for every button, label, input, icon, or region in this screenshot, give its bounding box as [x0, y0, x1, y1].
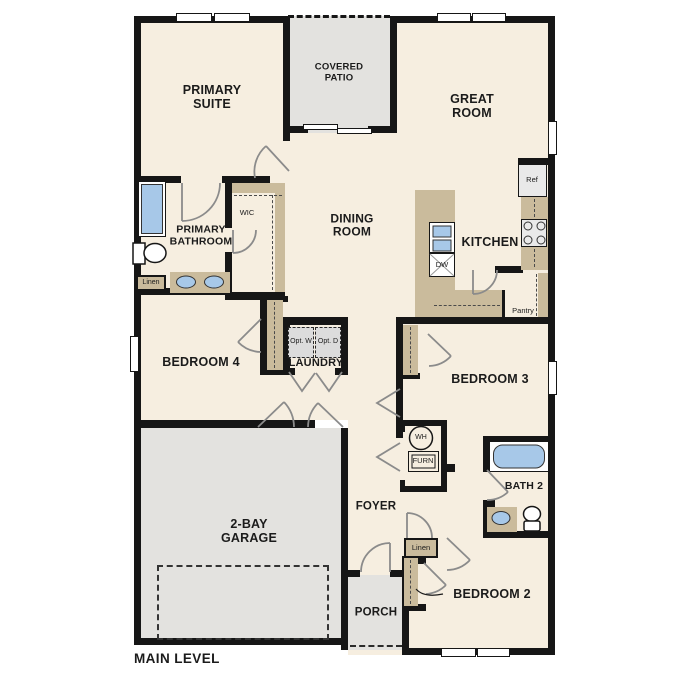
room-label-great-room: GREAT ROOM: [442, 92, 502, 120]
plan-title: MAIN LEVEL: [134, 651, 274, 666]
room-label-foyer: FOYER: [346, 501, 406, 514]
fixture-label-opt-dryer: Opt. D: [316, 338, 340, 346]
room-label-covered-patio: COVERED PATIO: [307, 62, 371, 83]
room-label-kitchen: KITCHEN: [450, 235, 530, 249]
room-label-wic: WIC: [227, 209, 267, 217]
fixture-label-opt-washer: Opt. W: [289, 338, 313, 346]
fixture-label-furnace: FURN: [406, 457, 440, 465]
room-label-primary-suite: PRIMARY SUITE: [171, 83, 253, 111]
room-label-dining-room: DINING ROOM: [322, 213, 382, 240]
room-label-primary-bathroom: PRIMARY BATHROOM: [161, 224, 241, 248]
room-label-bedroom3: BEDROOM 3: [435, 372, 545, 386]
floor-plan: PRIMARY SUITE COVERED PATIO GREAT ROOM D…: [0, 0, 687, 687]
room-label-laundry: LAUNDRY: [276, 357, 356, 369]
labels-layer: PRIMARY SUITE COVERED PATIO GREAT ROOM D…: [0, 0, 687, 687]
fixture-label-dw: DW: [427, 261, 457, 269]
room-label-garage: 2-BAY GARAGE: [208, 517, 290, 545]
room-label-pantry: Pantry: [498, 307, 548, 315]
fixture-label-water-heater: WH: [409, 434, 433, 442]
room-label-porch: PORCH: [346, 607, 406, 620]
room-label-bedroom2: BEDROOM 2: [437, 587, 547, 601]
fixture-label-linen-bathroom: Linen: [134, 279, 168, 287]
room-label-bath2: BATH 2: [502, 481, 546, 493]
fixture-label-ref: Ref: [517, 176, 547, 184]
room-label-bedroom4: BEDROOM 4: [146, 355, 256, 369]
fixture-label-linen-hall: Linen: [401, 544, 441, 552]
